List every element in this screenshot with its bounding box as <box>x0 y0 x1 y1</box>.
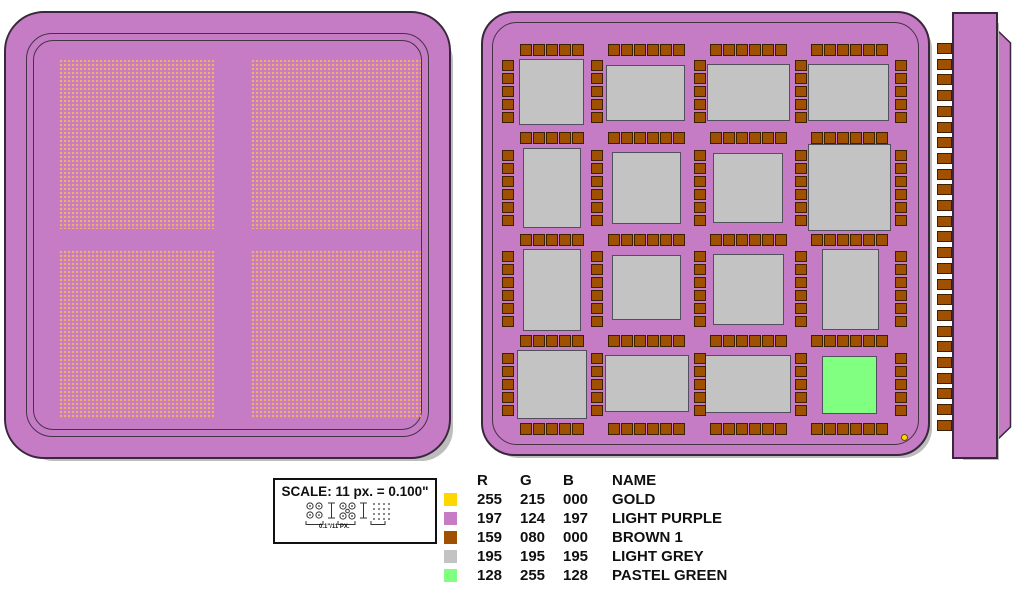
side-pad <box>937 247 952 258</box>
bottom-pad <box>621 423 633 435</box>
module-r4c1 <box>517 350 587 419</box>
bottom-pad <box>795 316 807 327</box>
side-pad <box>937 310 952 321</box>
bottom-pad <box>591 353 603 364</box>
legend-swatch-cell <box>444 490 477 509</box>
bottom-pad <box>546 44 558 56</box>
bottom-pad <box>710 234 722 246</box>
legend-g-value: 215 <box>520 490 563 509</box>
module-r3c1 <box>523 249 581 331</box>
bottom-pad <box>694 189 706 200</box>
bottom-pad <box>673 132 685 144</box>
bottom-pad <box>559 423 571 435</box>
bottom-pad <box>520 44 532 56</box>
legend-b-value: 195 <box>563 547 612 566</box>
bottom-pad <box>795 202 807 213</box>
bottom-pad <box>694 60 706 71</box>
bottom-pad <box>621 335 633 347</box>
module-r2c1 <box>523 148 581 228</box>
side-pad <box>937 153 952 164</box>
bottom-pad <box>895 112 907 123</box>
bottom-pad <box>533 234 545 246</box>
side-pad <box>937 231 952 242</box>
bottom-pad <box>591 277 603 288</box>
bottom-pad <box>837 423 849 435</box>
bottom-pad <box>660 234 672 246</box>
bottom-pad <box>895 303 907 314</box>
bottom-pad <box>694 112 706 123</box>
bottom-pad <box>710 423 722 435</box>
bottom-pad <box>634 44 646 56</box>
bottom-pad <box>762 132 774 144</box>
legend-b-value: 000 <box>563 490 612 509</box>
bottom-pad <box>673 44 685 56</box>
bottom-pad <box>572 132 584 144</box>
module-r1c3 <box>707 64 790 121</box>
bottom-pad <box>660 335 672 347</box>
module-r3c4 <box>822 249 879 330</box>
bottom-pad <box>694 392 706 403</box>
legend-b-value: 197 <box>563 509 612 528</box>
bottom-pad <box>502 99 514 110</box>
bottom-pad <box>837 44 849 56</box>
legend-swatch <box>444 550 457 563</box>
legend-g-value: 195 <box>520 547 563 566</box>
bottom-pad <box>502 316 514 327</box>
bottom-pad <box>572 335 584 347</box>
bottom-pad <box>850 423 862 435</box>
bottom-pad <box>775 423 787 435</box>
bottom-pad <box>850 335 862 347</box>
bottom-pad <box>502 163 514 174</box>
bottom-pad <box>591 392 603 403</box>
bottom-pad <box>502 60 514 71</box>
bottom-pad <box>824 335 836 347</box>
legend-r-value: 255 <box>477 490 520 509</box>
bottom-pad <box>533 423 545 435</box>
bottom-pad <box>591 99 603 110</box>
ball-grid-quadrant-1 <box>59 59 215 229</box>
legend-swatch <box>444 569 457 582</box>
bottom-pad <box>895 290 907 301</box>
package-top-view <box>4 11 451 459</box>
diagram-canvas: { "scale_box": { "title": "SCALE: 11 px.… <box>0 0 1024 597</box>
bottom-pad <box>502 392 514 403</box>
bottom-pad <box>795 277 807 288</box>
bottom-pad <box>795 264 807 275</box>
package-side-view <box>930 0 1020 475</box>
bottom-pad <box>533 44 545 56</box>
legend-r-value: 195 <box>477 547 520 566</box>
side-pad <box>937 373 952 384</box>
module-r4c4 <box>822 356 877 414</box>
bottom-pad <box>749 335 761 347</box>
legend-header: B <box>563 471 612 490</box>
bottom-pad <box>824 44 836 56</box>
side-pad <box>937 200 952 211</box>
bottom-pad <box>863 44 875 56</box>
bottom-pad <box>811 423 823 435</box>
legend-g-value: 080 <box>520 528 563 547</box>
bottom-pad <box>673 234 685 246</box>
legend-swatch <box>444 531 457 544</box>
bottom-pad <box>824 132 836 144</box>
bottom-pad <box>876 132 888 144</box>
bottom-pad <box>660 132 672 144</box>
bottom-pad <box>895 215 907 226</box>
side-pad <box>937 216 952 227</box>
bottom-pad <box>591 405 603 416</box>
side-fin <box>996 28 1012 442</box>
bottom-pad <box>502 353 514 364</box>
bottom-pad <box>502 202 514 213</box>
bottom-pad <box>876 423 888 435</box>
bottom-pad <box>502 150 514 161</box>
bottom-pad <box>863 234 875 246</box>
scale-title: SCALE: 11 px. = 0.100" <box>275 484 435 499</box>
side-pad <box>937 43 952 54</box>
bottom-pad <box>795 150 807 161</box>
bottom-pad <box>736 132 748 144</box>
bottom-pad <box>591 264 603 275</box>
side-pad <box>937 388 952 399</box>
bottom-pad <box>723 234 735 246</box>
bottom-pad <box>694 366 706 377</box>
bottom-pad <box>591 150 603 161</box>
module-r4c3 <box>705 355 791 413</box>
bottom-pad <box>502 73 514 84</box>
bottom-pad <box>795 366 807 377</box>
bottom-pad <box>591 215 603 226</box>
bottom-pad <box>520 234 532 246</box>
bottom-pad <box>546 132 558 144</box>
bottom-pad <box>694 405 706 416</box>
side-pad <box>937 169 952 180</box>
bottom-pad <box>895 60 907 71</box>
bottom-pad <box>850 44 862 56</box>
bottom-pad <box>850 234 862 246</box>
bottom-pad <box>710 44 722 56</box>
bottom-pad <box>749 132 761 144</box>
side-pad <box>937 122 952 133</box>
bottom-pad <box>694 176 706 187</box>
bottom-pad <box>795 303 807 314</box>
bottom-pad <box>895 405 907 416</box>
bottom-pad <box>502 215 514 226</box>
bottom-pad <box>502 189 514 200</box>
bottom-pad <box>608 234 620 246</box>
bottom-pad <box>694 251 706 262</box>
bottom-pad <box>660 423 672 435</box>
bottom-pad <box>647 132 659 144</box>
bottom-pad <box>749 423 761 435</box>
bottom-pad <box>502 176 514 187</box>
side-pad <box>937 137 952 148</box>
bottom-pad <box>634 234 646 246</box>
bottom-pad <box>895 202 907 213</box>
module-r2c3 <box>713 153 783 223</box>
legend-r-value: 128 <box>477 566 520 585</box>
bottom-pad <box>723 423 735 435</box>
bottom-pad <box>591 251 603 262</box>
bottom-pad <box>608 335 620 347</box>
bottom-pad <box>559 335 571 347</box>
bottom-pad <box>660 44 672 56</box>
bottom-pad <box>647 234 659 246</box>
bottom-pad <box>795 163 807 174</box>
ball-grid-quadrant-4 <box>251 250 421 419</box>
bottom-pad <box>895 189 907 200</box>
bottom-pad <box>795 392 807 403</box>
bottom-pad <box>647 423 659 435</box>
bottom-pad <box>591 303 603 314</box>
bottom-pad <box>775 335 787 347</box>
bottom-pad <box>533 132 545 144</box>
bottom-pad <box>591 112 603 123</box>
bottom-pad <box>694 264 706 275</box>
bottom-pad <box>895 150 907 161</box>
bottom-pad <box>749 234 761 246</box>
bottom-pad <box>762 335 774 347</box>
bottom-pad <box>694 73 706 84</box>
module-r2c4 <box>808 144 891 231</box>
bottom-pad <box>895 99 907 110</box>
side-fin-polygon <box>997 30 1011 440</box>
bottom-pad <box>608 423 620 435</box>
bottom-pad <box>502 112 514 123</box>
bottom-pad <box>762 44 774 56</box>
module-r3c3 <box>713 254 784 325</box>
bottom-pad <box>694 353 706 364</box>
bottom-pad <box>694 99 706 110</box>
legend-header: R <box>477 471 520 490</box>
bottom-pad <box>502 366 514 377</box>
bottom-pad <box>876 44 888 56</box>
bottom-pad <box>863 132 875 144</box>
bottom-pad <box>863 335 875 347</box>
legend-g-value: 124 <box>520 509 563 528</box>
bottom-pad <box>572 234 584 246</box>
bottom-pad <box>775 44 787 56</box>
bottom-pad <box>546 234 558 246</box>
bottom-pad <box>895 379 907 390</box>
bottom-pad <box>621 234 633 246</box>
legend-color-name: LIGHT PURPLE <box>612 509 727 528</box>
side-pad <box>937 357 952 368</box>
bottom-pad <box>694 86 706 97</box>
bottom-pad <box>762 234 774 246</box>
bottom-pad <box>591 163 603 174</box>
side-pad <box>937 263 952 274</box>
bottom-pad <box>572 44 584 56</box>
bottom-pad <box>723 132 735 144</box>
bottom-pad <box>795 189 807 200</box>
bottom-pad <box>591 366 603 377</box>
bottom-pad <box>736 335 748 347</box>
bottom-pad <box>559 234 571 246</box>
module-r1c4 <box>808 64 889 121</box>
bottom-pad <box>795 86 807 97</box>
legend-header-spacer <box>444 471 477 490</box>
bottom-pad <box>811 234 823 246</box>
bottom-pad <box>795 251 807 262</box>
side-body <box>952 12 998 459</box>
bottom-pad <box>795 215 807 226</box>
bottom-pad <box>795 60 807 71</box>
bottom-pad <box>863 423 875 435</box>
bottom-pad <box>520 423 532 435</box>
bottom-pad <box>546 335 558 347</box>
legend-swatch-cell <box>444 547 477 566</box>
bottom-pad <box>634 132 646 144</box>
bottom-pad <box>837 335 849 347</box>
bottom-pad <box>502 251 514 262</box>
bottom-pad <box>694 202 706 213</box>
bottom-pad <box>736 44 748 56</box>
module-r3c2 <box>612 255 681 320</box>
bottom-pad <box>608 132 620 144</box>
bottom-pad <box>694 215 706 226</box>
bottom-pad <box>795 112 807 123</box>
module-r4c2 <box>605 355 689 412</box>
bottom-pad <box>559 132 571 144</box>
bottom-pad <box>591 86 603 97</box>
bottom-pad <box>559 44 571 56</box>
bottom-pad <box>591 73 603 84</box>
bottom-pad <box>591 176 603 187</box>
ball-grid-quadrant-3 <box>59 250 215 419</box>
bottom-pad <box>876 335 888 347</box>
bottom-pad <box>710 335 722 347</box>
bottom-pad <box>795 99 807 110</box>
ball-grid-quadrant-2 <box>251 59 421 229</box>
bottom-pad <box>795 73 807 84</box>
scale-box: SCALE: 11 px. = 0.100" 0.1"/11 PX. <box>273 478 437 544</box>
bottom-pad <box>824 423 836 435</box>
bottom-pad <box>694 277 706 288</box>
module-r2c2 <box>612 152 681 224</box>
bottom-pad <box>502 303 514 314</box>
legend-swatch-cell <box>444 566 477 585</box>
module-r1c2 <box>606 65 685 121</box>
bottom-pad <box>775 132 787 144</box>
bottom-pad <box>795 353 807 364</box>
bottom-pad <box>837 234 849 246</box>
side-pad <box>937 59 952 70</box>
side-pad <box>937 74 952 85</box>
bottom-pad <box>723 44 735 56</box>
bottom-pad <box>647 44 659 56</box>
bottom-pad <box>634 423 646 435</box>
legend-color-name: PASTEL GREEN <box>612 566 727 585</box>
package-bottom-view <box>481 11 930 456</box>
bottom-pad <box>694 150 706 161</box>
bottom-pad <box>775 234 787 246</box>
bottom-pad <box>850 132 862 144</box>
bottom-pad <box>736 234 748 246</box>
bottom-pad <box>502 277 514 288</box>
bottom-pad <box>502 405 514 416</box>
bottom-pad <box>762 423 774 435</box>
bottom-pad <box>795 405 807 416</box>
bottom-pad <box>811 44 823 56</box>
bottom-pad <box>673 423 685 435</box>
bottom-pad <box>591 202 603 213</box>
side-pad <box>937 106 952 117</box>
bottom-pad <box>895 316 907 327</box>
module-r1c1 <box>519 59 584 125</box>
side-pad <box>937 90 952 101</box>
bottom-pad <box>895 176 907 187</box>
bottom-pad <box>591 379 603 390</box>
bottom-pad <box>811 335 823 347</box>
legend-color-name: BROWN 1 <box>612 528 727 547</box>
bottom-pad <box>895 163 907 174</box>
bottom-pad <box>895 86 907 97</box>
bottom-pad <box>876 234 888 246</box>
legend-header: G <box>520 471 563 490</box>
bottom-pad <box>749 44 761 56</box>
side-pad <box>937 279 952 290</box>
bottom-pad <box>546 423 558 435</box>
bottom-pad <box>710 132 722 144</box>
bottom-pad <box>502 264 514 275</box>
bottom-pad <box>520 132 532 144</box>
bottom-pad <box>591 316 603 327</box>
bottom-pad <box>895 353 907 364</box>
legend-g-value: 255 <box>520 566 563 585</box>
bottom-pad <box>895 264 907 275</box>
bottom-pad <box>520 335 532 347</box>
legend-r-value: 159 <box>477 528 520 547</box>
bottom-pad <box>837 132 849 144</box>
legend-b-value: 128 <box>563 566 612 585</box>
legend-swatch <box>444 493 457 506</box>
pin1-gold-dot <box>901 434 908 441</box>
bottom-pad <box>502 290 514 301</box>
legend-color-name: GOLD <box>612 490 727 509</box>
side-pad <box>937 184 952 195</box>
bottom-pad <box>621 132 633 144</box>
bottom-pad <box>621 44 633 56</box>
legend-b-value: 000 <box>563 528 612 547</box>
bottom-pad <box>895 392 907 403</box>
bottom-pad <box>694 316 706 327</box>
bottom-pad <box>572 423 584 435</box>
bottom-pad <box>694 379 706 390</box>
bottom-pad <box>533 335 545 347</box>
bottom-pad <box>502 379 514 390</box>
side-pad <box>937 294 952 305</box>
side-pad <box>937 420 952 431</box>
bottom-pad <box>647 335 659 347</box>
bottom-pad <box>895 366 907 377</box>
scale-diagram <box>303 500 407 526</box>
bottom-pad <box>811 132 823 144</box>
legend-swatch-cell <box>444 509 477 528</box>
bottom-pad <box>895 73 907 84</box>
legend-header: NAME <box>612 471 727 490</box>
bottom-pad <box>795 290 807 301</box>
bottom-pad <box>895 277 907 288</box>
side-pad <box>937 326 952 337</box>
legend-swatch-cell <box>444 528 477 547</box>
bottom-pad <box>795 176 807 187</box>
bottom-pad <box>824 234 836 246</box>
bottom-pad <box>694 303 706 314</box>
legend-r-value: 197 <box>477 509 520 528</box>
color-legend: RGBNAME255215000GOLD197124197LIGHT PURPL… <box>444 471 727 585</box>
